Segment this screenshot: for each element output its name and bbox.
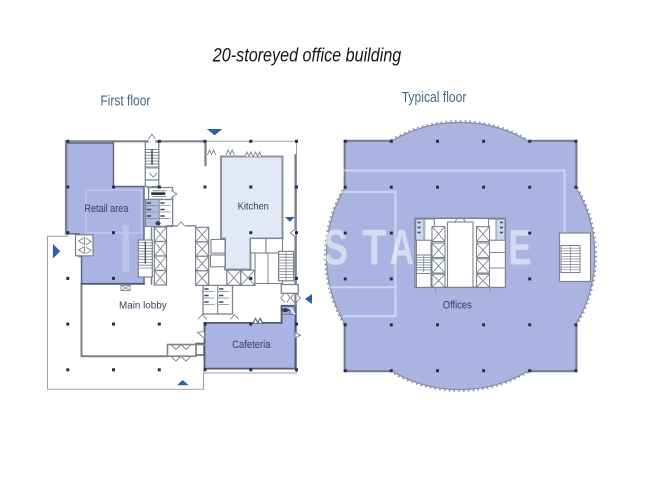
svg-text:20-storeyed office building: 20-storeyed office building xyxy=(212,46,402,67)
svg-text:Retail area: Retail area xyxy=(84,203,129,215)
svg-text:E: E xyxy=(509,220,532,276)
svg-text:S: S xyxy=(324,220,349,276)
svg-text:Kitchen: Kitchen xyxy=(238,201,269,213)
svg-text:First floor: First floor xyxy=(100,94,150,110)
svg-text:Cafeteria: Cafeteria xyxy=(232,339,270,351)
svg-text:A: A xyxy=(390,220,415,276)
svg-text:Typical floor: Typical floor xyxy=(402,90,467,106)
svg-text:Main lobby: Main lobby xyxy=(119,301,167,312)
svg-text:Offices: Offices xyxy=(443,300,472,312)
svg-text:T: T xyxy=(362,220,387,276)
